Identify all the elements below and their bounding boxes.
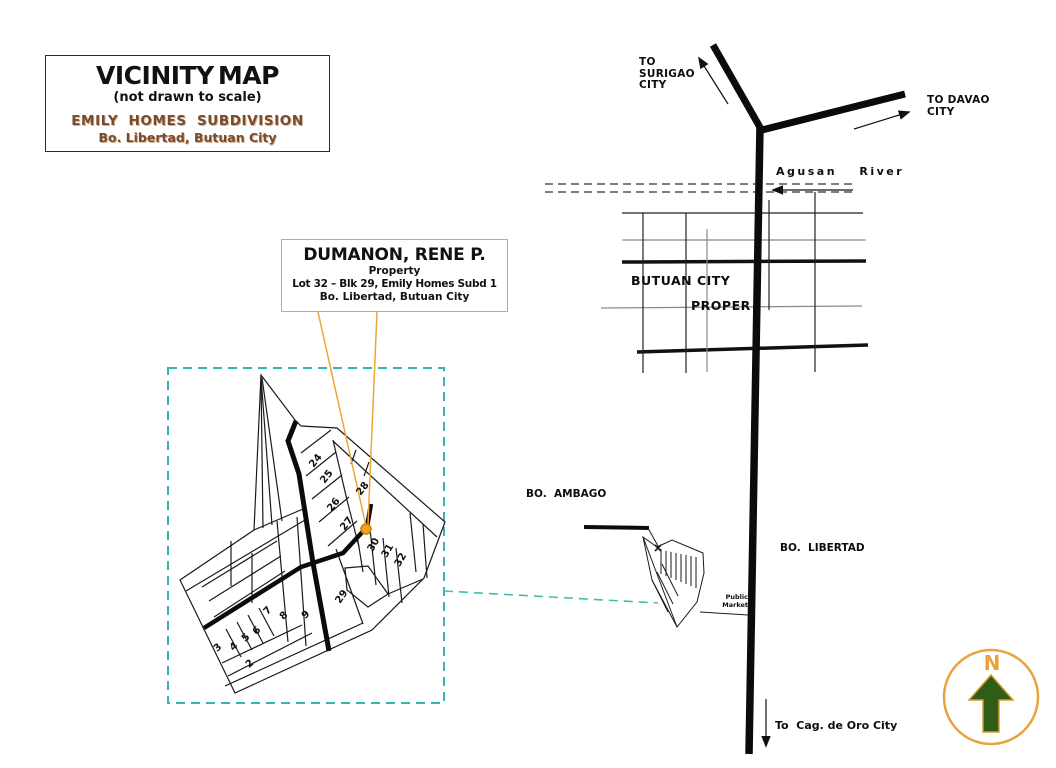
property-word: Property — [282, 265, 507, 278]
map-title-box: VICINITY MAP (not drawn to scale) EMILY … — [45, 55, 330, 152]
public-market-tie-line — [700, 612, 748, 615]
subdivision-location: Bo. Libertad, Butuan City — [46, 130, 329, 145]
property-owner: DUMANON, RENE P. — [282, 245, 507, 265]
label-agusan-river: Agusan River — [776, 165, 904, 178]
road-to-davao — [758, 94, 905, 131]
label-to-cagayan: To Cag. de Oro City — [775, 719, 897, 732]
label-bo-ambago: BO. AMBAGO — [526, 488, 606, 500]
property-callout-box: DUMANON, RENE P. Property Lot 32 – Blk 2… — [281, 239, 508, 312]
compass-north-letter: N — [981, 651, 1003, 675]
arrow-to-davao — [854, 112, 909, 129]
property-location-dot — [361, 524, 371, 534]
ambago-area — [584, 527, 748, 627]
label-bo-libertad: BO. LIBERTAD — [780, 542, 865, 554]
highway-roads — [713, 45, 905, 754]
label-to-surigao-city: TO SURIGAO CITY — [639, 57, 695, 92]
vicinity-map-page: VICINITY MAP (not drawn to scale) EMILY … — [0, 0, 1056, 768]
map-title: VICINITY MAP — [46, 61, 329, 90]
map-subtitle: (not drawn to scale) — [46, 90, 329, 105]
property-location: Bo. Libertad, Butuan City — [282, 291, 507, 304]
national-highway — [749, 126, 760, 754]
agusan-river-lines — [545, 184, 856, 192]
mini-plat-outline — [643, 537, 704, 627]
ambago-road — [584, 527, 649, 528]
label-public-market: Public Market — [712, 594, 748, 609]
label-to-davao-city: TO DAVAO CITY — [927, 95, 990, 118]
label-butuan-city: BUTUAN CITY — [631, 273, 730, 288]
subdivision-name: EMILY HOMES SUBDIVISION — [46, 113, 329, 129]
direction-arrows — [699, 58, 909, 746]
plat-focus-frame — [168, 368, 658, 703]
label-proper: PROPER — [691, 298, 751, 313]
property-lot-block: Lot 32 – Blk 29, Emily Homes Subd 1 — [282, 278, 507, 291]
road-to-surigao — [713, 45, 761, 129]
